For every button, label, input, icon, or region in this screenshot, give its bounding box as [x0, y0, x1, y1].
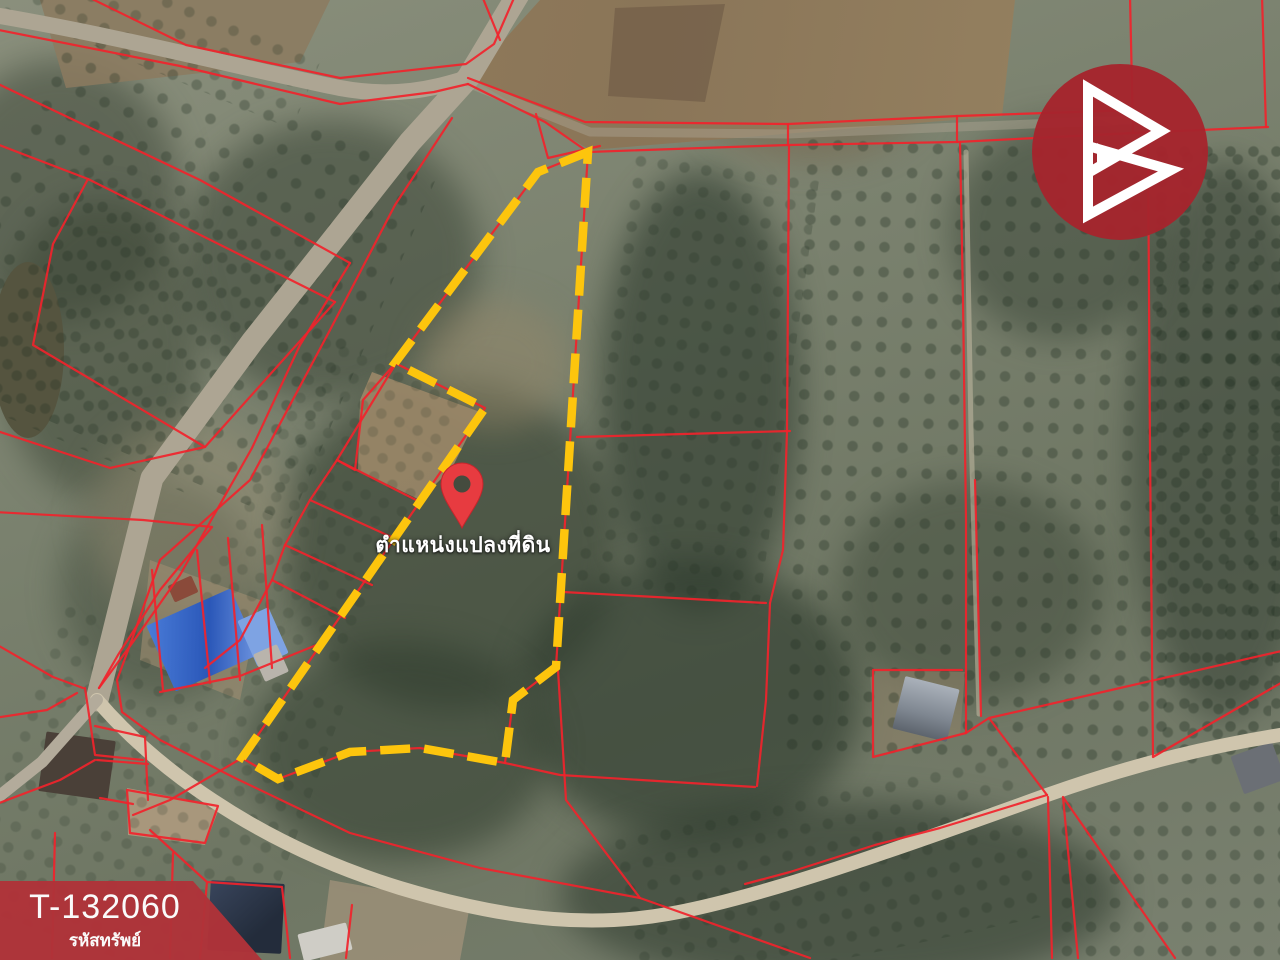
road-main-diagonal: [97, 0, 522, 700]
property-code-banner: T-132060 รหัสทรัพย์: [0, 881, 300, 960]
road-lower: [97, 700, 1280, 921]
plot-boundary-yellow-dashes: [242, 152, 588, 779]
orchard-pattern: [194, 330, 466, 670]
pin-icon: [441, 463, 483, 528]
pin-hole: [454, 476, 471, 493]
terrain-base: [0, 0, 1280, 960]
road-curved-topleft: [0, 14, 468, 92]
property-code: T-132060: [0, 890, 210, 924]
orchard-pattern: [779, 132, 1280, 769]
field-patch-roadside: [0, 0, 1280, 960]
brand-logo-triangle-bottom: [1088, 146, 1171, 215]
brand-logo-triangle-top: [1088, 88, 1161, 173]
field-patch-top-streak: [0, 0, 1280, 960]
brand-logo-circle: [1032, 64, 1208, 240]
orchard-pattern: [0, 0, 323, 129]
property-code-caption: รหัสทรัพย์: [0, 927, 210, 954]
location-pin: [441, 463, 483, 528]
building-dark-brown: [38, 731, 116, 800]
field-patch-junction: [0, 0, 1280, 960]
track-north-south: [966, 152, 979, 714]
building-blue-roof: [146, 588, 259, 691]
building-gray-shed: [253, 644, 289, 682]
field-patch-house-yard: [0, 0, 1280, 960]
orchard-pattern: [1055, 795, 1280, 960]
building-red-roof: [167, 575, 198, 602]
orchard-pattern: [570, 149, 819, 611]
building-white-shed: [297, 922, 352, 960]
brand-logo-triangle-small: [1097, 143, 1120, 170]
field-patch-top: [0, 0, 1280, 960]
brand-logo: [1032, 64, 1208, 240]
roads-layer: [0, 0, 1280, 921]
orchard-pattern: [607, 748, 1053, 960]
plot-boundary-cadastral: [242, 152, 588, 779]
field-patch-topleft: [0, 0, 1280, 960]
orchard-pattern: [0, 17, 438, 523]
orchard-pattern: [0, 156, 294, 494]
pond: [0, 0, 1280, 960]
building-corner-gray: [1230, 742, 1280, 795]
building-blue-roof-small: [237, 607, 288, 667]
building-gray-house: [892, 676, 959, 742]
plot-boundary-dashed: [242, 152, 588, 779]
parcel-boundary-lines: [0, 0, 1280, 958]
field-patch-bottom: [0, 0, 1280, 960]
track-corridor: [470, 84, 1130, 134]
road-southwest-stub: [0, 700, 97, 802]
field-patch-notch: [0, 0, 1280, 960]
map-overlay: [0, 0, 1280, 960]
satellite-map-image: ตำแหน่งแปลงที่ดิน T-132060 รหัสทรัพย์: [0, 0, 1280, 960]
pin-label: ตำแหน่งแปลงที่ดิน: [330, 529, 596, 562]
orchard-pattern: [1150, 140, 1280, 760]
